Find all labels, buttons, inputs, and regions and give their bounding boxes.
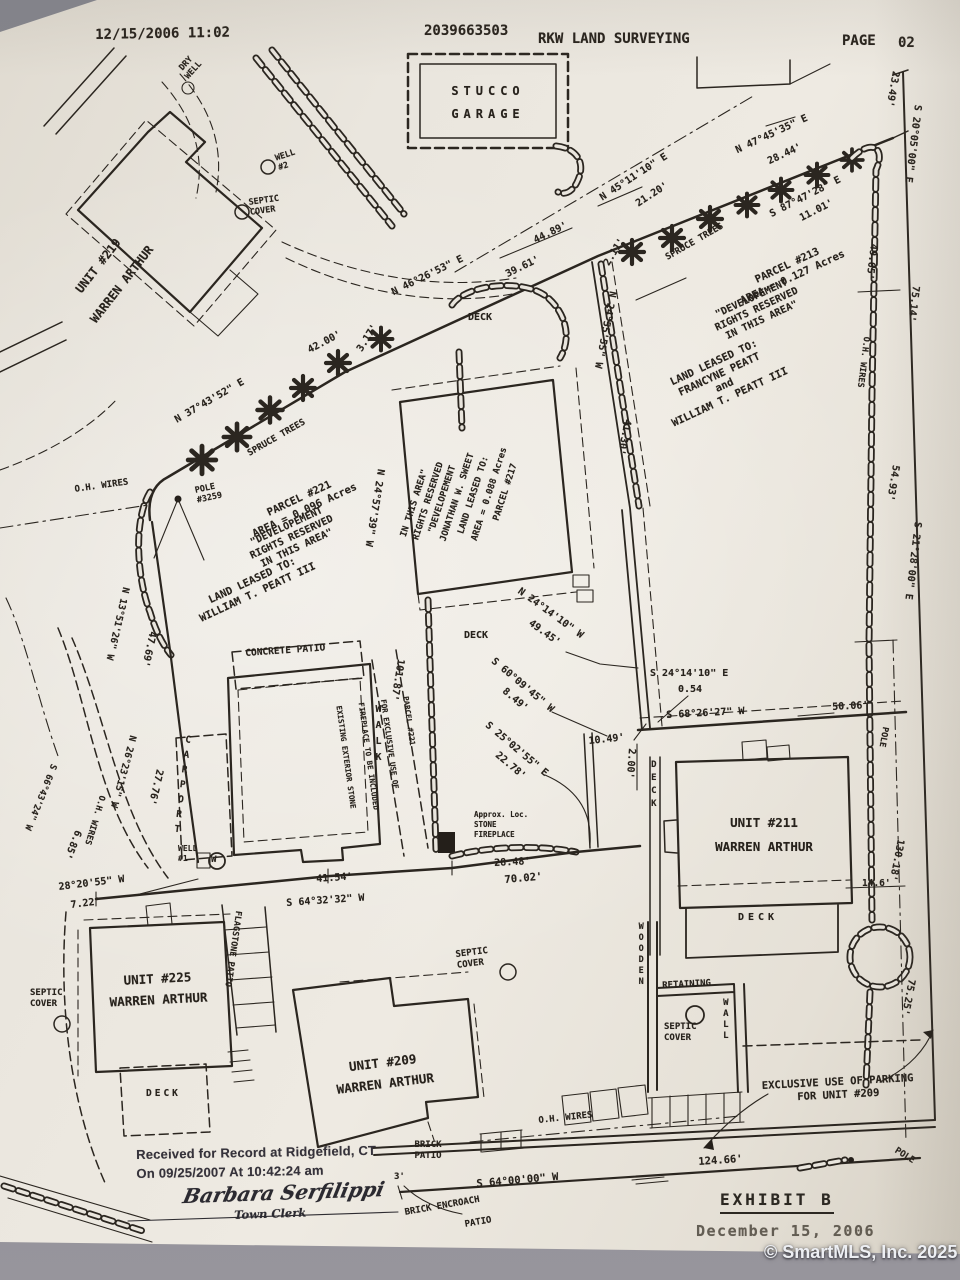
fax-number: 2039663503 — [424, 23, 508, 40]
septic-cover-label-3: SEPTIC COVER — [455, 946, 490, 971]
fax-datetime: 12/15/2006 11:02 — [95, 25, 230, 44]
deck-label-211: DECK — [738, 912, 778, 924]
dim-2848: 28.48' — [494, 856, 531, 870]
dim-4154: 41.54' — [316, 871, 353, 885]
septic-cover-label-4: SEPTIC COVER — [664, 1022, 697, 1044]
deck-label-225: DECK — [146, 1088, 181, 1099]
stucco-garage-label: STUCCO GARAGE — [423, 80, 553, 126]
wall-label: WALL — [720, 998, 731, 1042]
clerk-title: Town Clerk — [234, 1205, 306, 1222]
well-symbol: W — [211, 855, 216, 866]
scanned-survey-page: 12/15/2006 11:02 2039663503 RKW LAND SUR… — [0, 0, 960, 1280]
exhibit-title: EXHIBIT B — [720, 1190, 834, 1214]
fax-sender: RKW LAND SURVEYING — [538, 31, 690, 48]
dim-5006: 50.06' — [832, 700, 869, 714]
well-1-label: WELL #1 — [178, 844, 197, 863]
fireplace-note: EXISTING EXTERIOR STONE FIREPLACE TO BE … — [322, 694, 441, 842]
deck-label-2: DECK — [464, 630, 488, 642]
deck-label-vertical: DECK — [648, 760, 659, 812]
wooden-label: WOODEN — [636, 922, 646, 988]
septic-cover-label-1: SEPTIC COVER — [248, 194, 281, 218]
smartmls-watermark: © SmartMLS, Inc. 2025 — [764, 1242, 957, 1263]
unit-225-label: UNIT #225 WARREN ARTHUR — [82, 964, 234, 1014]
septic-cover-label-2: SEPTIC COVER — [30, 988, 63, 1010]
dim-3: 3' — [394, 1172, 405, 1183]
deck-label-1: DECK — [468, 312, 492, 324]
recorder-stamp: Received for Record at Ridgefield, CT On… — [136, 1142, 377, 1184]
exhibit-date: December 15, 2006 — [696, 1222, 875, 1238]
dim-200: 2.00' — [623, 748, 637, 779]
dim-146: 14.6' — [862, 878, 891, 889]
brick-patio-label: BRICK PATIO — [398, 1140, 458, 1162]
unit-211-label: UNIT #211 WARREN ARTHUR — [689, 811, 839, 859]
page-label: PAGE — [842, 33, 876, 50]
bearing-s2414: S 24°14'10" E — [650, 668, 728, 680]
dim-054: 0.54 — [678, 684, 702, 696]
stone-fireplace-label: Approx. Loc. STONE FIREPLACE — [474, 810, 528, 839]
fireplace-note-line4: PARCEL #221 — [400, 695, 430, 830]
page-number: 02 — [898, 35, 915, 52]
